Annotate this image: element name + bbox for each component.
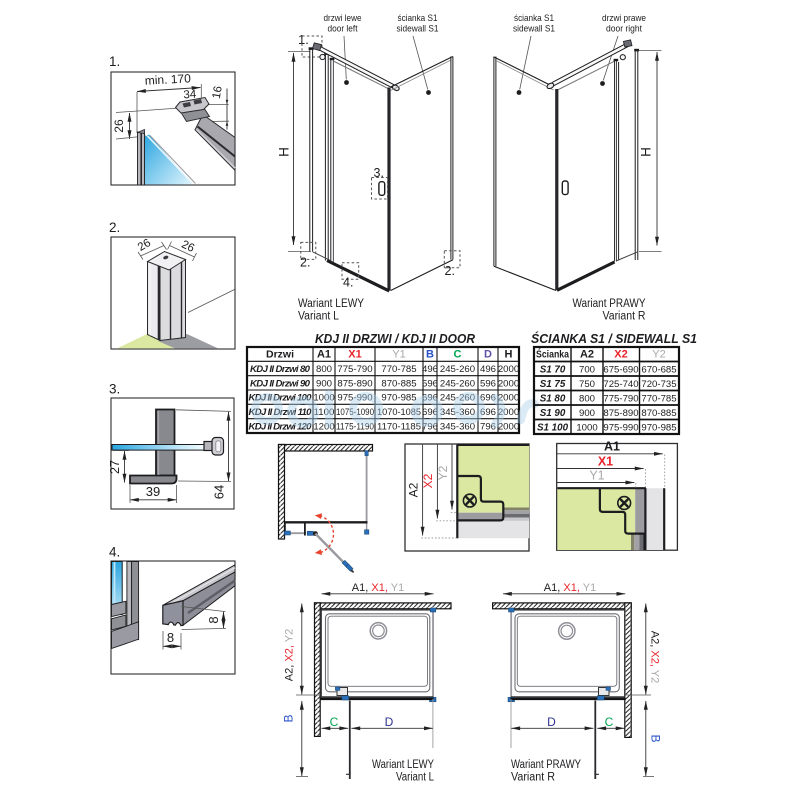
svg-text:725-740: 725-740 xyxy=(603,379,638,390)
svg-text:X2: X2 xyxy=(614,349,627,361)
svg-text:A2, X2, Y2: A2, X2, Y2 xyxy=(284,629,296,681)
svg-text:16: 16 xyxy=(211,85,225,100)
svg-text:26: 26 xyxy=(112,119,126,133)
svg-text:H: H xyxy=(639,147,654,157)
svg-text:1000: 1000 xyxy=(576,422,597,433)
svg-text:KDJ II DRZWI / KDJ II DOOR: KDJ II DRZWI / KDJ II DOOR xyxy=(315,331,476,346)
svg-text:X2: X2 xyxy=(421,473,435,488)
svg-text:door left: door left xyxy=(328,24,358,35)
svg-text:A1: A1 xyxy=(317,349,331,361)
svg-text:X1: X1 xyxy=(598,454,613,468)
svg-text:A1: A1 xyxy=(604,439,620,453)
svg-text:2.: 2. xyxy=(445,264,455,278)
svg-text:Y2: Y2 xyxy=(436,465,450,480)
svg-text:27: 27 xyxy=(108,460,122,474)
svg-text:Wariant LEWY: Wariant LEWY xyxy=(372,759,434,771)
svg-text:2000: 2000 xyxy=(498,364,519,375)
svg-text:S1 80: S1 80 xyxy=(540,393,566,404)
svg-text:KDJ II Drzwi 90: KDJ II Drzwi 90 xyxy=(250,378,311,389)
svg-text:ścianka S1: ścianka S1 xyxy=(398,13,438,24)
svg-text:A1, X1, Y1: A1, X1, Y1 xyxy=(544,582,596,594)
svg-text:770-785: 770-785 xyxy=(641,393,676,404)
svg-text:750: 750 xyxy=(579,379,595,390)
svg-text:sidewall S1: sidewall S1 xyxy=(397,24,439,35)
svg-text:drzwi lewe: drzwi lewe xyxy=(324,13,362,24)
svg-text:775-790: 775-790 xyxy=(603,393,638,404)
svg-text:H: H xyxy=(277,147,292,157)
svg-text:64: 64 xyxy=(212,485,227,499)
svg-text:min. 170: min. 170 xyxy=(144,71,191,87)
svg-text:S1 90: S1 90 xyxy=(540,408,566,419)
svg-text:596: 596 xyxy=(480,378,496,389)
svg-text:800: 800 xyxy=(316,364,332,375)
svg-text:700: 700 xyxy=(579,364,595,375)
svg-text:975-990: 975-990 xyxy=(603,422,638,433)
svg-text:drzwi prawe: drzwi prawe xyxy=(602,13,646,24)
svg-text:2000: 2000 xyxy=(498,378,519,389)
svg-text:S1 70: S1 70 xyxy=(540,364,566,375)
svg-text:4.: 4. xyxy=(343,276,353,290)
svg-text:675-690: 675-690 xyxy=(603,364,638,375)
svg-text:775-790: 775-790 xyxy=(337,364,372,375)
svg-text:870-885: 870-885 xyxy=(381,378,416,389)
svg-text:496: 496 xyxy=(480,364,496,375)
svg-text:4.: 4. xyxy=(109,545,120,560)
svg-text:496: 496 xyxy=(422,364,438,375)
svg-text:Variant R: Variant R xyxy=(603,311,646,323)
svg-text:B: B xyxy=(649,734,663,742)
svg-text:900: 900 xyxy=(316,378,332,389)
svg-text:1170-1185: 1170-1185 xyxy=(377,421,421,432)
svg-text:875-890: 875-890 xyxy=(603,408,638,419)
svg-text:sidewall S1: sidewall S1 xyxy=(513,24,555,35)
svg-text:Y2: Y2 xyxy=(652,349,665,361)
svg-text:2.: 2. xyxy=(300,256,310,270)
svg-text:KDJ II Drzwi 80: KDJ II Drzwi 80 xyxy=(250,364,311,375)
svg-text:8: 8 xyxy=(167,630,174,645)
svg-text:970-985: 970-985 xyxy=(381,393,416,404)
svg-text:A1, X1, Y1: A1, X1, Y1 xyxy=(352,582,404,594)
svg-text:Wariant PRAWY: Wariant PRAWY xyxy=(573,298,646,310)
svg-text:875-890: 875-890 xyxy=(337,378,372,389)
svg-text:720-735: 720-735 xyxy=(641,379,676,390)
svg-text:C: C xyxy=(454,349,462,361)
svg-text:Variant L: Variant L xyxy=(396,772,434,784)
svg-text:ścianka S1: ścianka S1 xyxy=(514,13,554,24)
svg-text:900: 900 xyxy=(579,408,595,419)
svg-text:ŚCIANKA S1 / SIDEWALL S1: ŚCIANKA S1 / SIDEWALL S1 xyxy=(531,331,697,346)
svg-text:1.: 1. xyxy=(109,54,120,69)
svg-text:800: 800 xyxy=(579,393,595,404)
svg-text:596: 596 xyxy=(422,378,438,389)
svg-text:245-260: 245-260 xyxy=(440,364,475,375)
svg-text:X1: X1 xyxy=(348,349,361,361)
svg-text:S1 75: S1 75 xyxy=(540,379,566,390)
svg-text:Drzwi: Drzwi xyxy=(266,349,294,361)
svg-text:3.: 3. xyxy=(109,382,120,397)
svg-text:A2: A2 xyxy=(406,482,420,497)
svg-text:39: 39 xyxy=(146,484,160,499)
svg-text:770-785: 770-785 xyxy=(381,364,416,375)
svg-text:Y1: Y1 xyxy=(392,349,405,361)
svg-text:Wariant LEWY: Wariant LEWY xyxy=(298,298,364,310)
svg-text:D: D xyxy=(484,349,492,361)
svg-text:Variant L: Variant L xyxy=(298,311,340,323)
svg-text:H: H xyxy=(505,349,513,361)
svg-text:A2: A2 xyxy=(580,349,594,361)
svg-text:S1 100: S1 100 xyxy=(537,422,569,433)
svg-text:Ścianka: Ścianka xyxy=(536,348,569,361)
svg-text:245-260: 245-260 xyxy=(440,378,475,389)
svg-text:C: C xyxy=(605,715,614,729)
svg-text:D: D xyxy=(547,715,556,729)
svg-text:970-985: 970-985 xyxy=(641,422,676,433)
svg-text:B: B xyxy=(282,714,296,722)
svg-text:Wariant PRAWY: Wariant PRAWY xyxy=(511,759,581,771)
svg-text:870-885: 870-885 xyxy=(641,408,676,419)
svg-text:2.: 2. xyxy=(109,220,120,235)
svg-text:Variant R: Variant R xyxy=(511,772,555,784)
svg-text:C: C xyxy=(330,715,339,729)
svg-text:670-685: 670-685 xyxy=(641,364,676,375)
svg-text:Y1: Y1 xyxy=(589,468,604,482)
svg-text:A2, X2, Y2: A2, X2, Y2 xyxy=(649,631,661,683)
svg-text:door right: door right xyxy=(606,24,642,35)
svg-text:D: D xyxy=(385,715,394,729)
svg-text:8: 8 xyxy=(206,616,221,623)
svg-text:1.: 1. xyxy=(298,32,309,47)
svg-text:B: B xyxy=(426,349,434,361)
